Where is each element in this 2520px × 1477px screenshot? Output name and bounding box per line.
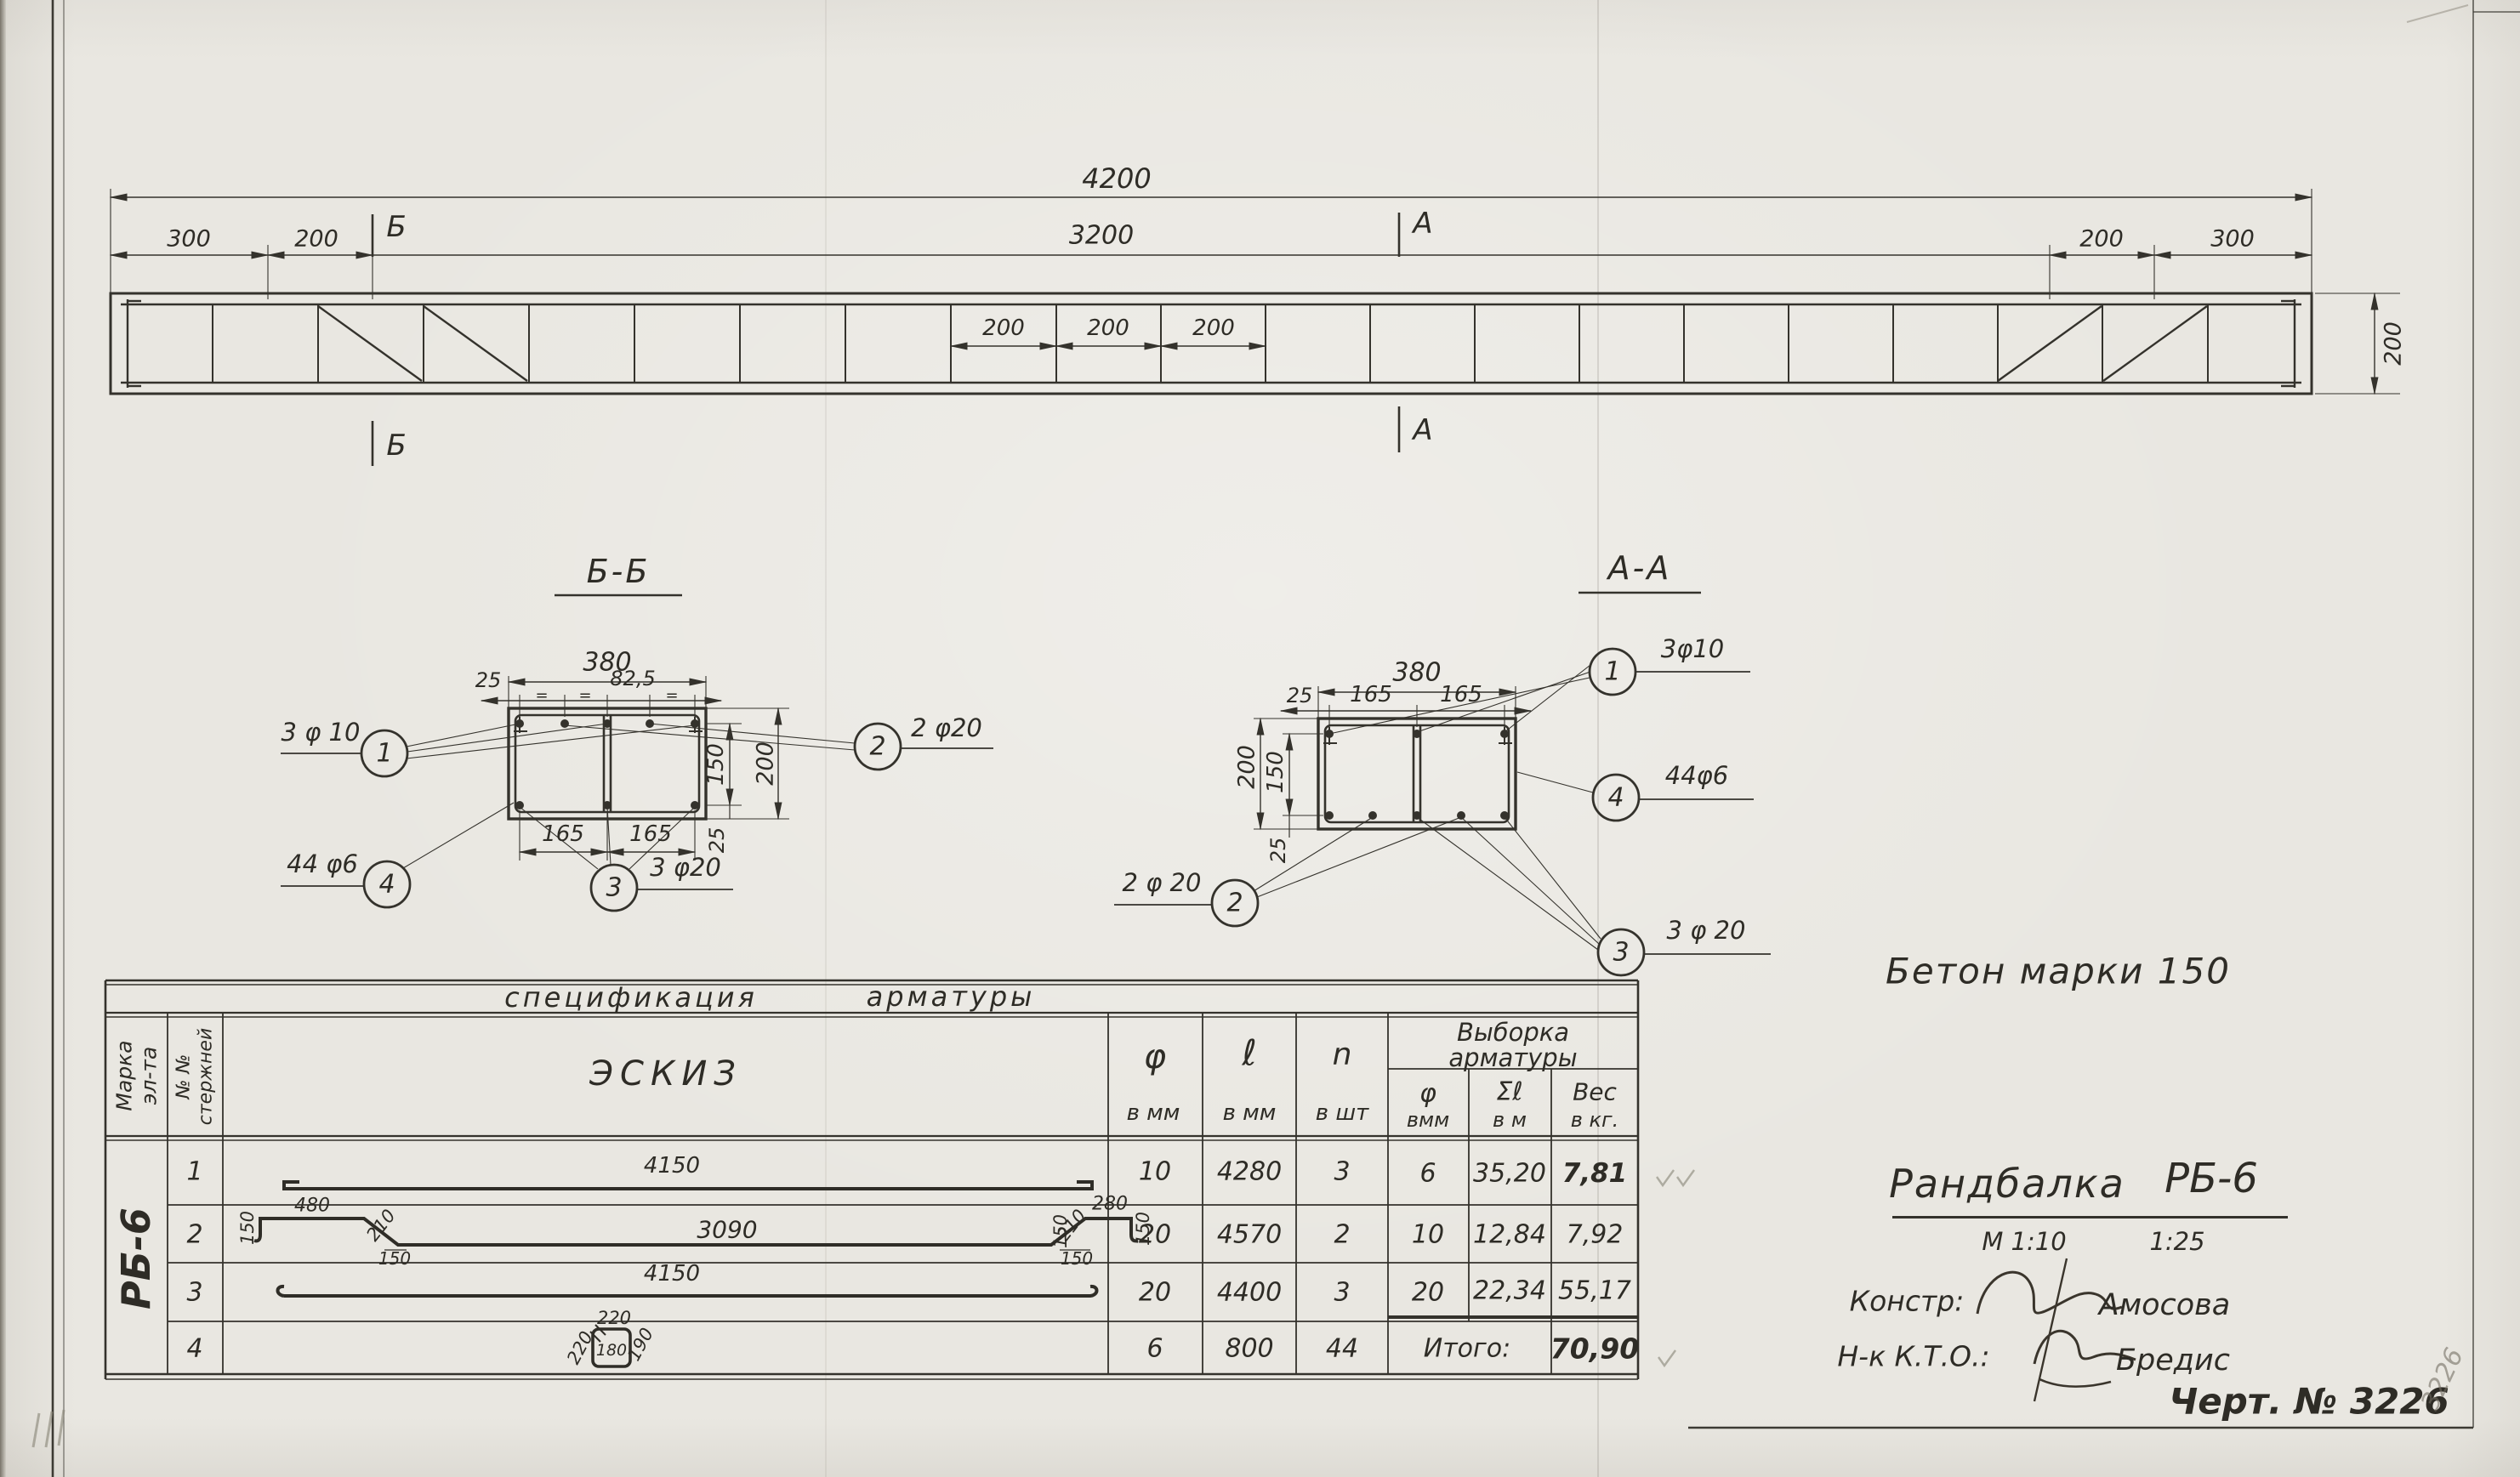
row3-vdia: 20 <box>1412 1278 1444 1308</box>
aa-dim-165-left: 165 <box>1350 682 1392 707</box>
beam-elevation <box>111 189 2400 466</box>
bb-callout-3-label: 3 φ20 <box>650 853 721 882</box>
sig2-label: Н-к К.Т.О.: <box>1837 1340 1989 1373</box>
header-qty-unit: в шт <box>1316 1100 1369 1126</box>
aa-callout-4-label: 44φ6 <box>1665 761 1728 790</box>
bb-dim-25-bottom: 25 <box>705 827 729 854</box>
beam-title: Рандбалка <box>1889 1161 2125 1207</box>
row1-vlen: 35,20 <box>1473 1159 1546 1189</box>
aa-callout-2-label: 2 φ 20 <box>1123 868 1202 897</box>
aa-dim-165-right: 165 <box>1440 682 1482 707</box>
bent-up-bars <box>318 306 2207 381</box>
row1-dia: 10 <box>1139 1157 1171 1187</box>
scale-alt: 1:25 <box>2149 1227 2204 1256</box>
dim-200-left: 200 <box>294 226 338 253</box>
bb-dim-165-left: 165 <box>542 821 584 847</box>
bb-eq-3: = <box>665 687 678 705</box>
row2-base-right: 150 <box>1061 1248 1093 1269</box>
dim-int-200-2: 200 <box>1087 315 1129 341</box>
aa-callout-1-num: 1 <box>1604 657 1620 687</box>
header-vlen-unit: в м <box>1493 1108 1527 1132</box>
row2-vlen: 12,84 <box>1473 1220 1546 1250</box>
bb-callout-1-num: 1 <box>376 739 392 769</box>
row4-total-label: Итого: <box>1424 1334 1511 1364</box>
row2-top-right: 280 <box>1092 1194 1128 1215</box>
spec-table-grid <box>105 980 1638 1379</box>
bb-eq-2: = <box>578 687 591 705</box>
header-vwt: Вес <box>1573 1078 1617 1106</box>
drawing-number: Черт. № 3226 <box>2169 1381 2449 1423</box>
aa-dim-25-bottom: 25 <box>1266 838 1290 864</box>
dim-300-left: 300 <box>167 226 211 253</box>
header-num-1: № № <box>173 1054 195 1099</box>
bb-dim-165-right: 165 <box>629 821 672 847</box>
header-marka-2: эл-та <box>137 1047 162 1105</box>
header-vdia-unit: вмм <box>1407 1108 1449 1132</box>
header-num-2: стержней <box>196 1028 217 1125</box>
aa-callout-2-num: 2 <box>1226 889 1243 918</box>
row2-no: 2 <box>186 1220 202 1250</box>
row2-top-left: 480 <box>294 1196 330 1217</box>
row1-qty: 3 <box>1334 1157 1350 1187</box>
bb-callout-2-num: 2 <box>869 732 885 762</box>
dim-int-200-3: 200 <box>1192 315 1235 341</box>
row3-dia: 20 <box>1139 1278 1171 1308</box>
row4-no: 4 <box>186 1334 202 1364</box>
row3-vwt: 55,17 <box>1558 1276 1631 1306</box>
section-mark-lines <box>373 213 1399 466</box>
dim-300-right: 300 <box>2210 226 2255 253</box>
row1-len: 4280 <box>1217 1157 1282 1187</box>
beam-title-mark: РБ-6 <box>2164 1155 2258 1202</box>
drawing-sheet: 4200 300 200 3200 200 300 200 200 200 20… <box>0 0 2520 1477</box>
row1-sketch-len: 4150 <box>644 1153 700 1179</box>
sig1-name: Амосова <box>2099 1288 2231 1322</box>
callout-circles-bb <box>361 724 901 911</box>
section-mark-a-bottom: А <box>1413 413 1432 447</box>
section-aa-title: А-А <box>1608 549 1672 587</box>
dim-row <box>111 245 2312 299</box>
row3-vlen: 22,34 <box>1473 1276 1546 1306</box>
row4-stirrup-inner: 180 <box>596 1341 627 1360</box>
header-qty: n <box>1333 1037 1352 1072</box>
aa-dim-380: 380 <box>1392 658 1441 688</box>
bb-callout-3-num: 3 <box>606 873 622 903</box>
row2-mid: 3090 <box>697 1216 757 1244</box>
title-underline <box>1892 1216 2288 1219</box>
row4-dia: 6 <box>1146 1334 1163 1364</box>
bb-callout-4-label: 44 φ6 <box>287 849 358 878</box>
section-bb-title: Б-Б <box>587 553 651 590</box>
row2-vwt: 7,92 <box>1567 1220 1624 1250</box>
header-len-unit: в мм <box>1223 1100 1277 1126</box>
row3-sketch-len: 4150 <box>644 1261 700 1287</box>
dim-4200 <box>111 189 2312 293</box>
header-vyborka-1: Выборка <box>1457 1018 1569 1047</box>
row2-dia: 20 <box>1139 1220 1171 1250</box>
bb-callout-1-label: 3 φ 10 <box>282 718 361 747</box>
dim-height-label: 200 <box>2381 321 2407 366</box>
row4-vwt-total: 70,90 <box>1550 1332 1639 1366</box>
aa-callout-1-label: 3φ10 <box>1661 634 1724 663</box>
section-mark-b-bottom: Б <box>386 429 406 463</box>
bb-dim-825: 82,5 <box>610 667 655 690</box>
bb-callout-4-num: 4 <box>378 870 395 900</box>
rebar-dots <box>1325 730 1509 820</box>
dim-int-200-1: 200 <box>982 315 1025 341</box>
header-dia: φ <box>1144 1037 1166 1077</box>
row2-base-left: 150 <box>378 1248 411 1269</box>
concrete-grade-note: Бетон марки 150 <box>1886 951 2231 992</box>
table-title-word1: спецификация <box>504 981 758 1014</box>
row1-no: 1 <box>186 1157 202 1187</box>
bb-dim-200: 200 <box>753 741 779 786</box>
header-len: ℓ <box>1242 1032 1256 1074</box>
header-vlen: Σℓ <box>1496 1077 1522 1107</box>
bb-dim-150: 150 <box>703 743 729 786</box>
row2-len: 4570 <box>1217 1220 1282 1250</box>
section-mark-a-top: А <box>1413 207 1432 241</box>
row4-len: 800 <box>1225 1334 1273 1364</box>
signature-squiggles <box>1977 1258 2136 1401</box>
row2-hook-left: 150 <box>237 1211 258 1245</box>
section-mark-b-top: Б <box>386 210 406 244</box>
row3-len: 4400 <box>1217 1278 1282 1308</box>
header-vwt-unit: в кг. <box>1571 1108 1619 1132</box>
dim-total-label: 4200 <box>1082 162 1151 195</box>
aa-callout-3-label: 3 φ 20 <box>1667 916 1746 945</box>
header-vdia: φ <box>1419 1079 1436 1109</box>
header-eskiz: ЭСКИЗ <box>589 1054 742 1094</box>
pencil-marks <box>33 1170 1694 1447</box>
row2-vdia: 10 <box>1412 1220 1444 1250</box>
aa-dim-25: 25 <box>1287 684 1313 707</box>
row3-qty: 3 <box>1334 1278 1350 1308</box>
row3-no: 3 <box>186 1278 202 1308</box>
aa-dim-150: 150 <box>1263 751 1288 793</box>
scale-main: М 1:10 <box>1982 1227 2066 1256</box>
dim-200-right: 200 <box>2079 226 2124 253</box>
dim-3200: 3200 <box>1069 221 1134 251</box>
aa-dim-200: 200 <box>1234 745 1260 789</box>
aa-callout-3-num: 3 <box>1613 938 1629 968</box>
header-dia-unit: в мм <box>1127 1100 1180 1126</box>
aa-callout-4-num: 4 <box>1607 783 1624 813</box>
sig1-label: Констр: <box>1850 1285 1965 1318</box>
bb-dim-25: 25 <box>475 668 502 692</box>
header-marka-1: Марка <box>112 1040 137 1111</box>
row2-qty: 2 <box>1334 1220 1350 1250</box>
header-vyborka-2: арматуры <box>1448 1043 1577 1072</box>
row1-vwt: 7,81 <box>1562 1158 1628 1189</box>
sig2-name: Бредис <box>2116 1344 2230 1378</box>
table-title-word2: арматуры <box>867 980 1036 1013</box>
bb-eq-1: = <box>535 687 548 705</box>
bb-callout-2-label: 2 φ20 <box>911 713 982 742</box>
row4-qty: 44 <box>1326 1334 1358 1364</box>
row4-stirrup-top: 220 <box>597 1308 631 1328</box>
row-marka-value: РБ-6 <box>113 1207 159 1309</box>
row1-vdia: 6 <box>1419 1159 1436 1189</box>
